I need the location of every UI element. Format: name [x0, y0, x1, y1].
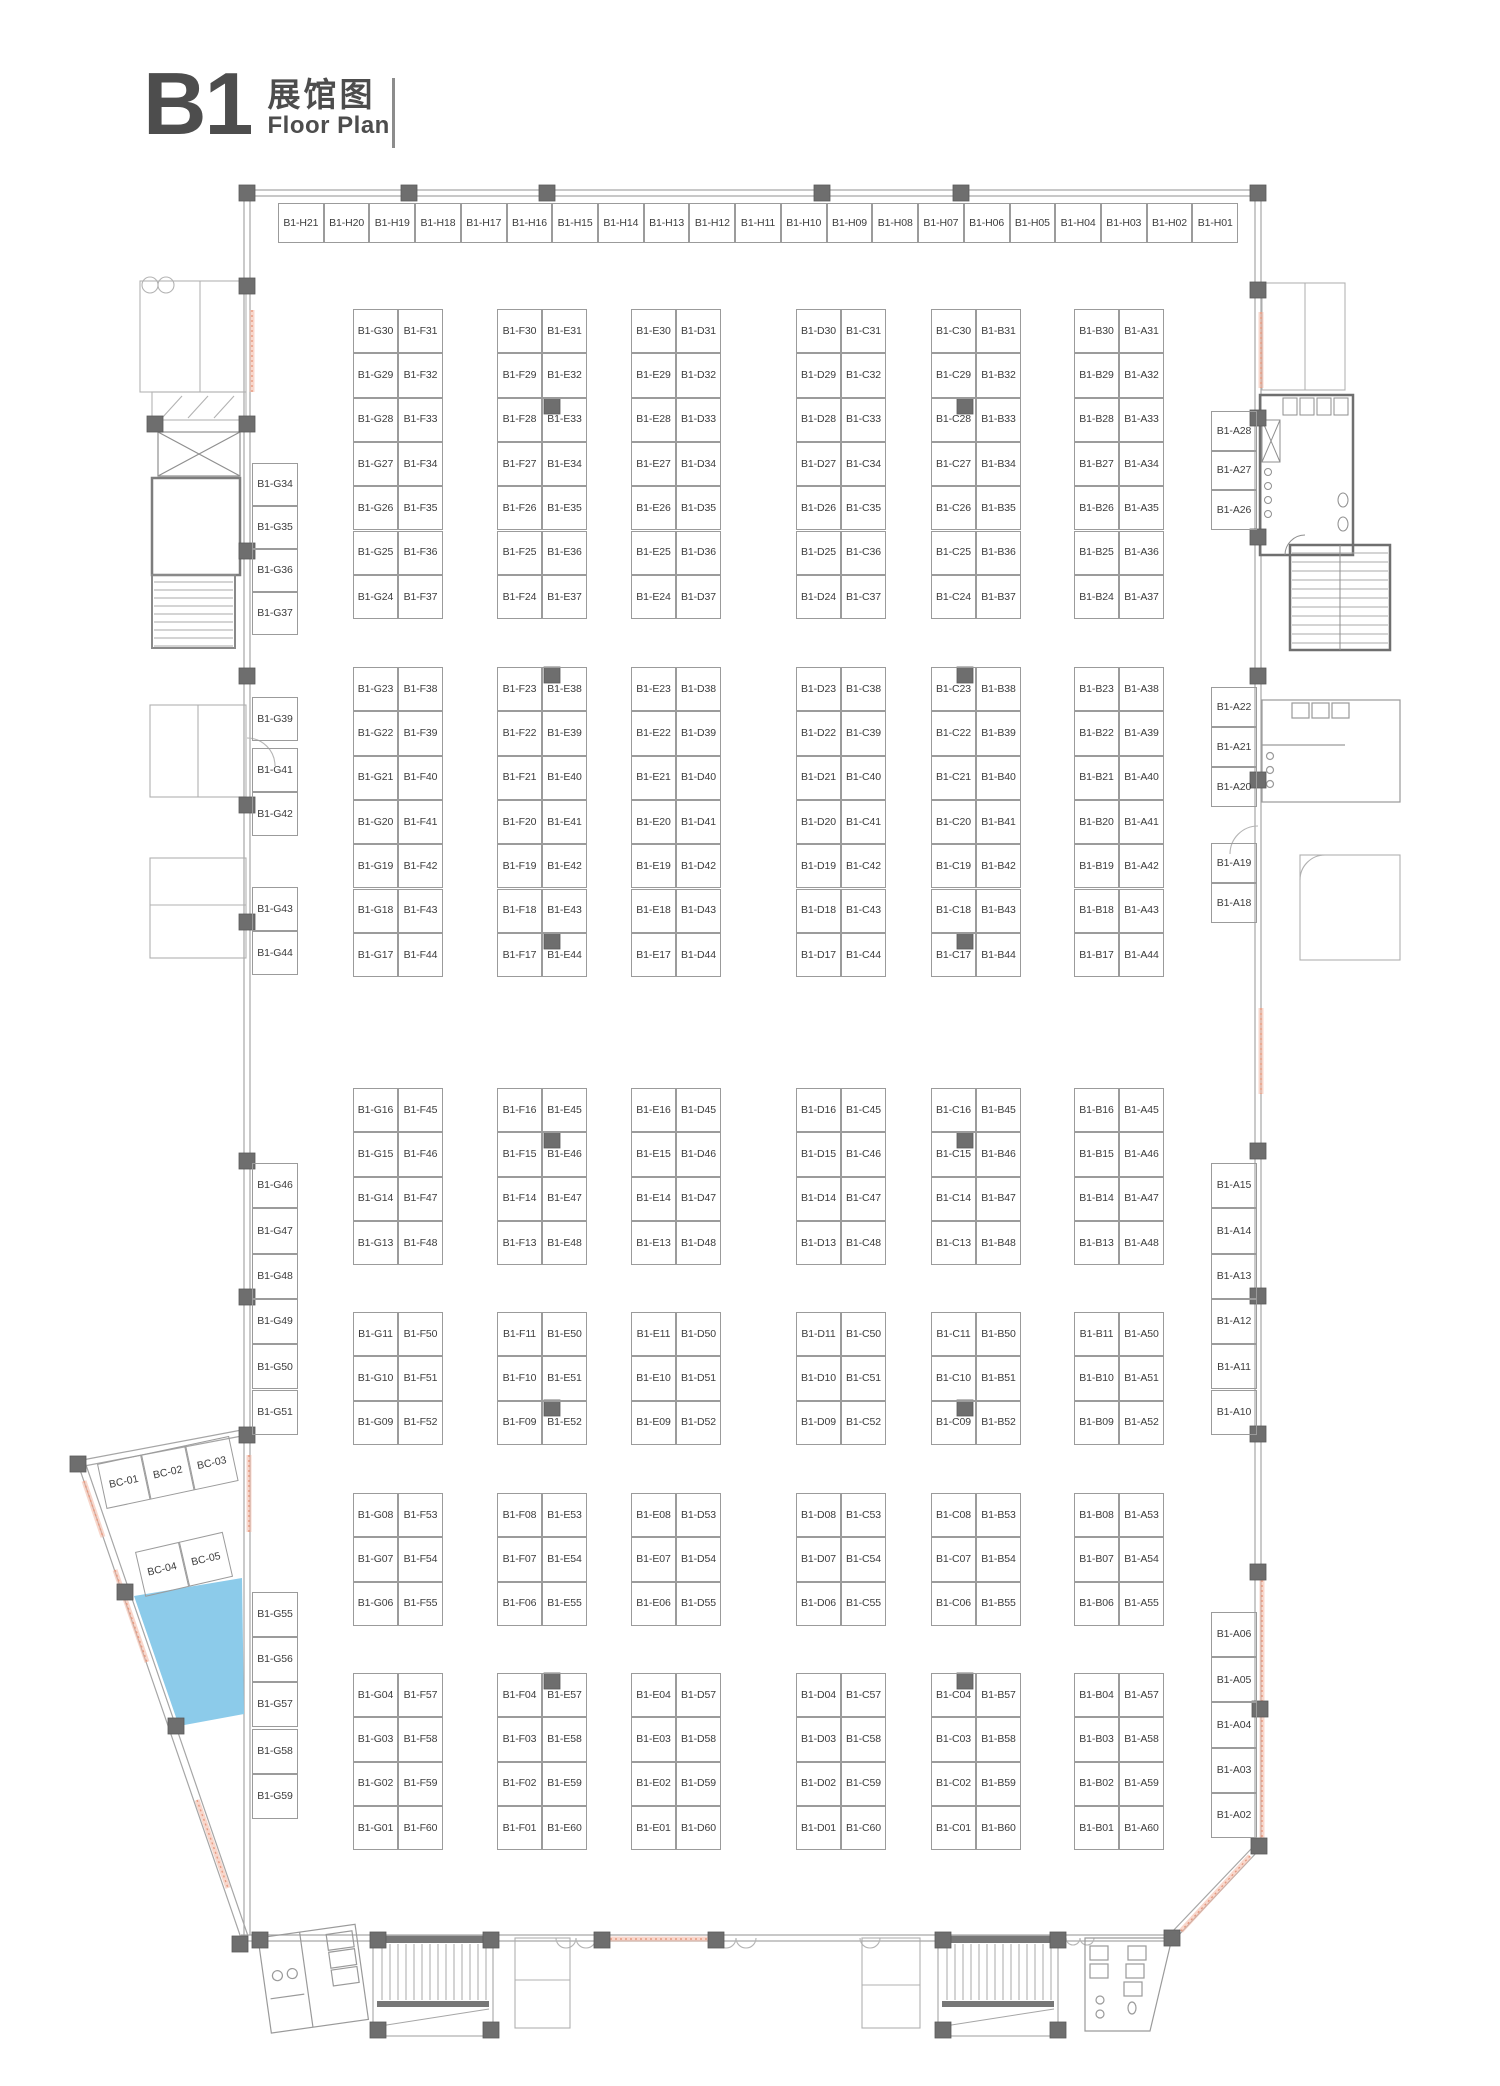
booth-cell: B1-A38 — [1119, 667, 1164, 711]
booth-cell: B1-D58 — [676, 1717, 721, 1761]
booth-cell: B1-B02 — [1074, 1762, 1119, 1806]
booth-cell: B1-G55 — [252, 1592, 298, 1637]
booth-cell: B1-E55 — [542, 1582, 587, 1626]
booth-cell: B1-G36 — [252, 549, 298, 592]
booth-cell: B1-H05 — [1010, 203, 1056, 243]
booth-cell: B1-A45 — [1119, 1088, 1164, 1132]
booth-cell: B1-F53 — [398, 1493, 443, 1537]
booth-cell: B1-C08 — [931, 1493, 976, 1537]
booth-cell: B1-E06 — [631, 1582, 676, 1626]
booth-cell: B1-E45 — [542, 1088, 587, 1132]
booth-cell: B1-C35 — [841, 486, 886, 530]
booth-cell: B1-C15 — [931, 1132, 976, 1176]
booth-cell: B1-H19 — [369, 203, 415, 243]
booth-cell: B1-E15 — [631, 1132, 676, 1176]
booth-cell: B1-C53 — [841, 1493, 886, 1537]
booth-cell: B1-G59 — [252, 1774, 298, 1819]
booth-cell: B1-D24 — [796, 575, 841, 619]
booth-cell: B1-F58 — [398, 1717, 443, 1761]
booth-cell: B1-A12 — [1211, 1299, 1257, 1344]
booth-cell: B1-D35 — [676, 486, 721, 530]
booth-cell: B1-F32 — [398, 353, 443, 397]
booth-cell: B1-D13 — [796, 1221, 841, 1265]
booth-cell: B1-G28 — [353, 398, 398, 442]
booth-cell: B1-D18 — [796, 889, 841, 933]
booth-cell: B1-D28 — [796, 398, 841, 442]
booth-cell: B1-B47 — [976, 1177, 1021, 1221]
booth-cell: B1-F14 — [497, 1177, 542, 1221]
booth-cell: B1-C11 — [931, 1312, 976, 1356]
booth-cell: B1-E21 — [631, 756, 676, 800]
booth-cell: B1-B13 — [1074, 1221, 1119, 1265]
booth-cell: B1-C58 — [841, 1717, 886, 1761]
booth-cell: B1-C32 — [841, 353, 886, 397]
booth-cell: B1-A27 — [1211, 451, 1257, 491]
booth-cell: B1-G56 — [252, 1637, 298, 1682]
booth-cell: B1-C13 — [931, 1221, 976, 1265]
floor-plan-page: B1 展馆图 Floor Plan — [0, 0, 1500, 2086]
booth-cell: B1-G49 — [252, 1299, 298, 1344]
booth-cell: B1-C26 — [931, 486, 976, 530]
booth-cell: B1-D22 — [796, 711, 841, 755]
booth-cell: B1-D10 — [796, 1356, 841, 1400]
booth-cell: B1-B46 — [976, 1132, 1021, 1176]
booth-cell: B1-B29 — [1074, 353, 1119, 397]
booth-cell: B1-A47 — [1119, 1177, 1164, 1221]
booth-cell: B1-D44 — [676, 933, 721, 977]
booth-cell: B1-D29 — [796, 353, 841, 397]
booth-cell: B1-C46 — [841, 1132, 886, 1176]
booth-cell: B1-C24 — [931, 575, 976, 619]
booth-cell: B1-E42 — [542, 844, 587, 888]
booth-cell: B1-E54 — [542, 1537, 587, 1581]
booth-cell: B1-H11 — [735, 203, 781, 243]
booth-cell: B1-F03 — [497, 1717, 542, 1761]
booth-cell: B1-E36 — [542, 531, 587, 575]
booth-cell: B1-H14 — [598, 203, 644, 243]
booth-cell: B1-A21 — [1211, 727, 1257, 767]
booth-cell: B1-A20 — [1211, 767, 1257, 807]
booth-cell: B1-E52 — [542, 1401, 587, 1445]
booth-cell: B1-G57 — [252, 1682, 298, 1727]
booth-cell: B1-B03 — [1074, 1717, 1119, 1761]
booth-cell: B1-E34 — [542, 442, 587, 486]
booth-cell: B1-H01 — [1192, 203, 1238, 243]
booth-cell: B1-C21 — [931, 756, 976, 800]
booth-cell: B1-D08 — [796, 1493, 841, 1537]
booth-cell: B1-E57 — [542, 1673, 587, 1717]
booth-cell: B1-B07 — [1074, 1537, 1119, 1581]
booth-cell: B1-A53 — [1119, 1493, 1164, 1537]
booth-cell: B1-B55 — [976, 1582, 1021, 1626]
booth-layer: B1-H21B1-H20B1-H19B1-H18B1-H17B1-H16B1-H… — [0, 0, 1500, 2086]
booth-cell: B1-D42 — [676, 844, 721, 888]
booth-cell: B1-E27 — [631, 442, 676, 486]
booth-cell: B1-C57 — [841, 1673, 886, 1717]
booth-cell: B1-G07 — [353, 1537, 398, 1581]
booth-cell: B1-B34 — [976, 442, 1021, 486]
booth-cell: B1-D46 — [676, 1132, 721, 1176]
booth-cell: B1-G16 — [353, 1088, 398, 1132]
booth-cell: B1-C17 — [931, 933, 976, 977]
booth-cell: B1-B20 — [1074, 800, 1119, 844]
booth-cell: B1-A02 — [1211, 1793, 1257, 1838]
booth-cell: B1-C55 — [841, 1582, 886, 1626]
booth-cell: B1-D07 — [796, 1537, 841, 1581]
booth-cell: B1-E13 — [631, 1221, 676, 1265]
booth-cell: B1-G22 — [353, 711, 398, 755]
booth-cell: B1-F40 — [398, 756, 443, 800]
booth-cell: B1-C37 — [841, 575, 886, 619]
booth-cell: B1-E32 — [542, 353, 587, 397]
booth-cell: B1-C60 — [841, 1806, 886, 1850]
booth-cell: B1-D01 — [796, 1806, 841, 1850]
booth-cell: B1-A32 — [1119, 353, 1164, 397]
booth-cell: B1-A37 — [1119, 575, 1164, 619]
booth-cell: B1-D53 — [676, 1493, 721, 1537]
booth-cell: B1-A58 — [1119, 1717, 1164, 1761]
booth-cell: B1-A43 — [1119, 889, 1164, 933]
booth-cell: B1-H10 — [781, 203, 827, 243]
booth-cell: B1-G35 — [252, 506, 298, 549]
booth-cell: B1-C16 — [931, 1088, 976, 1132]
booth-cell: B1-B21 — [1074, 756, 1119, 800]
booth-cell: B1-D47 — [676, 1177, 721, 1221]
booth-cell: B1-C19 — [931, 844, 976, 888]
booth-cell: B1-F09 — [497, 1401, 542, 1445]
booth-cell: B1-A59 — [1119, 1762, 1164, 1806]
booth-cell: B1-C06 — [931, 1582, 976, 1626]
booth-cell: B1-D48 — [676, 1221, 721, 1265]
booth-cell: B1-G18 — [353, 889, 398, 933]
booth-cell: B1-D19 — [796, 844, 841, 888]
booth-cell: B1-F23 — [497, 667, 542, 711]
booth-cell: B1-G42 — [252, 792, 298, 836]
booth-cell: B1-G34 — [252, 463, 298, 506]
booth-cell: B1-E37 — [542, 575, 587, 619]
booth-cell: B1-F46 — [398, 1132, 443, 1176]
booth-cell: B1-E25 — [631, 531, 676, 575]
booth-cell: B1-C28 — [931, 398, 976, 442]
booth-cell: B1-F47 — [398, 1177, 443, 1221]
booth-cell: B1-G51 — [252, 1390, 298, 1435]
booth-cell: B1-E44 — [542, 933, 587, 977]
booth-cell: B1-F06 — [497, 1582, 542, 1626]
booth-cell: B1-H16 — [507, 203, 553, 243]
booth-cell: B1-F07 — [497, 1537, 542, 1581]
booth-cell: B1-E51 — [542, 1356, 587, 1400]
booth-cell: B1-F43 — [398, 889, 443, 933]
booth-cell: B1-B19 — [1074, 844, 1119, 888]
booth-cell: B1-C02 — [931, 1762, 976, 1806]
booth-cell: B1-B48 — [976, 1221, 1021, 1265]
booth-cell: B1-C03 — [931, 1717, 976, 1761]
booth-cell: B1-F36 — [398, 531, 443, 575]
booth-cell: B1-G06 — [353, 1582, 398, 1626]
booth-cell: B1-B22 — [1074, 711, 1119, 755]
booth-cell: B1-B54 — [976, 1537, 1021, 1581]
booth-cell: B1-E33 — [542, 398, 587, 442]
booth-cell: B1-C40 — [841, 756, 886, 800]
booth-cell: B1-C54 — [841, 1537, 886, 1581]
booth-cell: B1-H09 — [827, 203, 873, 243]
booth-cell: B1-D54 — [676, 1537, 721, 1581]
booth-cell: B1-F22 — [497, 711, 542, 755]
booth-cell: B1-D36 — [676, 531, 721, 575]
booth-cell: B1-F57 — [398, 1673, 443, 1717]
booth-cell: B1-C20 — [931, 800, 976, 844]
booth-cell: B1-G03 — [353, 1717, 398, 1761]
booth-cell: B1-F45 — [398, 1088, 443, 1132]
booth-cell: B1-E16 — [631, 1088, 676, 1132]
booth-cell: B1-F10 — [497, 1356, 542, 1400]
booth-cell: B1-F30 — [497, 309, 542, 353]
booth-cell: B1-A18 — [1211, 883, 1257, 923]
booth-cell: B1-A34 — [1119, 442, 1164, 486]
booth-cell: B1-G44 — [252, 931, 298, 975]
booth-cell: B1-A52 — [1119, 1401, 1164, 1445]
booth-cell: B1-C31 — [841, 309, 886, 353]
booth-cell: B1-E04 — [631, 1673, 676, 1717]
booth-cell: B1-B11 — [1074, 1312, 1119, 1356]
booth-cell: B1-B57 — [976, 1673, 1021, 1717]
booth-cell: B1-D52 — [676, 1401, 721, 1445]
booth-cell: B1-A35 — [1119, 486, 1164, 530]
booth-cell: B1-A40 — [1119, 756, 1164, 800]
booth-cell: B1-B33 — [976, 398, 1021, 442]
booth-cell: B1-C25 — [931, 531, 976, 575]
booth-cell: B1-G08 — [353, 1493, 398, 1537]
booth-cell: B1-B58 — [976, 1717, 1021, 1761]
booth-cell: B1-A31 — [1119, 309, 1164, 353]
booth-cell: B1-B44 — [976, 933, 1021, 977]
booth-cell: B1-F50 — [398, 1312, 443, 1356]
booth-cell: B1-D40 — [676, 756, 721, 800]
booth-cell: B1-D21 — [796, 756, 841, 800]
booth-cell: B1-E17 — [631, 933, 676, 977]
booth-cell: B1-G20 — [353, 800, 398, 844]
booth-cell: B1-F17 — [497, 933, 542, 977]
booth-cell: B1-A39 — [1119, 711, 1164, 755]
bc-booth-strip: BC-01BC-02BC-03 — [97, 1436, 239, 1509]
booth-cell: B1-B28 — [1074, 398, 1119, 442]
booth-cell: B1-A33 — [1119, 398, 1164, 442]
booth-cell: B1-H13 — [644, 203, 690, 243]
booth-cell: B1-D38 — [676, 667, 721, 711]
booth-cell: B1-F18 — [497, 889, 542, 933]
booth-cell: B1-C42 — [841, 844, 886, 888]
booth-cell: B1-F51 — [398, 1356, 443, 1400]
booth-cell: B1-B23 — [1074, 667, 1119, 711]
booth-cell: B1-F60 — [398, 1806, 443, 1850]
booth-cell: B1-F31 — [398, 309, 443, 353]
booth-cell: B1-D14 — [796, 1177, 841, 1221]
booth-cell: B1-E08 — [631, 1493, 676, 1537]
booth-cell: B1-G11 — [353, 1312, 398, 1356]
booth-cell: B1-D50 — [676, 1312, 721, 1356]
booth-cell: B1-D30 — [796, 309, 841, 353]
booth-cell: B1-C34 — [841, 442, 886, 486]
booth-cell: B1-C45 — [841, 1088, 886, 1132]
booth-cell: B1-F44 — [398, 933, 443, 977]
booth-cell: B1-B26 — [1074, 486, 1119, 530]
booth-cell: B1-D15 — [796, 1132, 841, 1176]
booth-cell: B1-A13 — [1211, 1254, 1257, 1299]
booth-cell: B1-D59 — [676, 1762, 721, 1806]
booth-cell: B1-E50 — [542, 1312, 587, 1356]
booth-cell: B1-A11 — [1211, 1344, 1257, 1389]
booth-cell: B1-E26 — [631, 486, 676, 530]
booth-cell: B1-G41 — [252, 748, 298, 792]
booth-cell: B1-G46 — [252, 1163, 298, 1208]
booth-cell: B1-F15 — [497, 1132, 542, 1176]
booth-cell: B1-B53 — [976, 1493, 1021, 1537]
booth-cell: B1-F34 — [398, 442, 443, 486]
booth-cell: B1-G14 — [353, 1177, 398, 1221]
booth-cell: B1-C30 — [931, 309, 976, 353]
booth-cell: B1-C01 — [931, 1806, 976, 1850]
booth-cell: B1-G21 — [353, 756, 398, 800]
booth-cell: B1-G24 — [353, 575, 398, 619]
booth-cell: B1-H07 — [918, 203, 964, 243]
booth-cell: B1-H17 — [461, 203, 507, 243]
booth-cell: B1-E31 — [542, 309, 587, 353]
booth-cell: B1-C47 — [841, 1177, 886, 1221]
booth-cell: B1-G04 — [353, 1673, 398, 1717]
booth-cell: B1-F54 — [398, 1537, 443, 1581]
booth-cell: B1-E23 — [631, 667, 676, 711]
booth-cell: B1-D43 — [676, 889, 721, 933]
booth-cell: B1-B32 — [976, 353, 1021, 397]
booth-cell: B1-A04 — [1211, 1702, 1257, 1747]
booth-cell: B1-F52 — [398, 1401, 443, 1445]
booth-cell: B1-F37 — [398, 575, 443, 619]
booth-cell: B1-A19 — [1211, 843, 1257, 883]
booth-cell: B1-F19 — [497, 844, 542, 888]
booth-cell: B1-G26 — [353, 486, 398, 530]
booth-cell: B1-B10 — [1074, 1356, 1119, 1400]
booth-cell: B1-B42 — [976, 844, 1021, 888]
booth-cell: B1-H02 — [1147, 203, 1193, 243]
booth-cell: B1-E28 — [631, 398, 676, 442]
booth-cell: B1-G02 — [353, 1762, 398, 1806]
booth-cell: B1-B40 — [976, 756, 1021, 800]
booth-cell: B1-E40 — [542, 756, 587, 800]
booth-cell: B1-H03 — [1101, 203, 1147, 243]
booth-cell: B1-E22 — [631, 711, 676, 755]
booth-cell: B1-G37 — [252, 592, 298, 635]
booth-cell: B1-F04 — [497, 1673, 542, 1717]
booth-cell: B1-G58 — [252, 1729, 298, 1774]
booth-cell: B1-H20 — [324, 203, 370, 243]
booth-cell: B1-B45 — [976, 1088, 1021, 1132]
booth-cell: B1-C33 — [841, 398, 886, 442]
booth-cell: B1-C52 — [841, 1401, 886, 1445]
booth-cell: B1-C18 — [931, 889, 976, 933]
booth-cell: B1-D16 — [796, 1088, 841, 1132]
booth-cell: B1-D55 — [676, 1582, 721, 1626]
booth-cell: B1-G43 — [252, 887, 298, 931]
booth-cell: B1-C51 — [841, 1356, 886, 1400]
booth-cell: B1-A14 — [1211, 1208, 1257, 1253]
booth-cell: B1-E20 — [631, 800, 676, 844]
booth-cell: B1-F01 — [497, 1806, 542, 1850]
booth-cell: B1-G19 — [353, 844, 398, 888]
booth-cell: B1-A50 — [1119, 1312, 1164, 1356]
booth-cell: B1-E10 — [631, 1356, 676, 1400]
booth-cell: B1-G17 — [353, 933, 398, 977]
booth-cell: B1-D03 — [796, 1717, 841, 1761]
booth-cell: B1-F41 — [398, 800, 443, 844]
booth-cell: B1-A06 — [1211, 1612, 1257, 1657]
booth-cell: B1-F38 — [398, 667, 443, 711]
booth-cell: B1-E14 — [631, 1177, 676, 1221]
booth-cell: B1-B30 — [1074, 309, 1119, 353]
booth-cell: B1-B25 — [1074, 531, 1119, 575]
booth-cell: B1-F35 — [398, 486, 443, 530]
booth-cell: BC-05 — [179, 1532, 233, 1587]
booth-cell: B1-B15 — [1074, 1132, 1119, 1176]
booth-cell: B1-G50 — [252, 1344, 298, 1389]
booth-cell: B1-E03 — [631, 1717, 676, 1761]
booth-cell: B1-G30 — [353, 309, 398, 353]
booth-cell: B1-B16 — [1074, 1088, 1119, 1132]
booth-cell: B1-C44 — [841, 933, 886, 977]
booth-cell: B1-D39 — [676, 711, 721, 755]
booth-cell: B1-F11 — [497, 1312, 542, 1356]
booth-cell: B1-A51 — [1119, 1356, 1164, 1400]
booth-cell: B1-D26 — [796, 486, 841, 530]
booth-cell: B1-F25 — [497, 531, 542, 575]
booth-cell: B1-B08 — [1074, 1493, 1119, 1537]
booth-cell: B1-B31 — [976, 309, 1021, 353]
booth-cell: B1-G01 — [353, 1806, 398, 1850]
booth-cell: B1-B09 — [1074, 1401, 1119, 1445]
booth-cell: B1-B14 — [1074, 1177, 1119, 1221]
booth-cell: B1-A15 — [1211, 1163, 1257, 1208]
booth-cell: B1-B06 — [1074, 1582, 1119, 1626]
booth-cell: B1-F16 — [497, 1088, 542, 1132]
booth-cell: B1-C38 — [841, 667, 886, 711]
booth-cell: B1-B27 — [1074, 442, 1119, 486]
booth-cell: B1-E39 — [542, 711, 587, 755]
booth-cell: B1-F33 — [398, 398, 443, 442]
booth-cell: B1-C50 — [841, 1312, 886, 1356]
booth-cell: B1-F59 — [398, 1762, 443, 1806]
booth-cell: B1-B04 — [1074, 1673, 1119, 1717]
booth-cell: B1-B35 — [976, 486, 1021, 530]
booth-cell: B1-E07 — [631, 1537, 676, 1581]
booth-cell: B1-B17 — [1074, 933, 1119, 977]
booth-cell: B1-C39 — [841, 711, 886, 755]
booth-cell: B1-G15 — [353, 1132, 398, 1176]
booth-cell: B1-F20 — [497, 800, 542, 844]
booth-cell: B1-D11 — [796, 1312, 841, 1356]
booth-cell: B1-F08 — [497, 1493, 542, 1537]
booth-cell: B1-B01 — [1074, 1806, 1119, 1850]
booth-cell: B1-D60 — [676, 1806, 721, 1850]
booth-cell: B1-A26 — [1211, 490, 1257, 530]
booth-cell: B1-E11 — [631, 1312, 676, 1356]
booth-cell: B1-D32 — [676, 353, 721, 397]
booth-cell: B1-E02 — [631, 1762, 676, 1806]
booth-cell: B1-G48 — [252, 1254, 298, 1299]
booth-cell: B1-H18 — [415, 203, 461, 243]
booth-cell: B1-D02 — [796, 1762, 841, 1806]
booth-cell: B1-A42 — [1119, 844, 1164, 888]
booth-cell: B1-D09 — [796, 1401, 841, 1445]
booth-cell: B1-E09 — [631, 1401, 676, 1445]
